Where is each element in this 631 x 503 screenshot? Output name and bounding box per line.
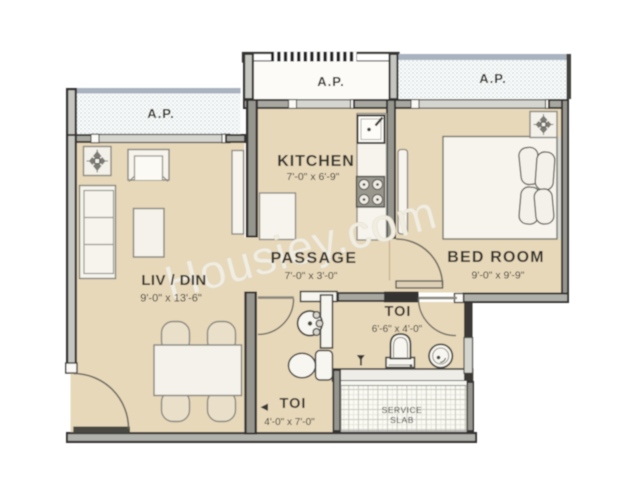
svg-text:KITCHEN: KITCHEN (277, 153, 354, 170)
svg-text:LIV / DIN: LIV / DIN (141, 272, 206, 289)
svg-text:4'-0" x 7'-0": 4'-0" x 7'-0" (264, 417, 315, 428)
svg-text:BED ROOM: BED ROOM (447, 249, 545, 266)
svg-text:7'-0" x 6'-9": 7'-0" x 6'-9" (287, 171, 340, 183)
svg-text:A.P.: A.P. (317, 74, 345, 89)
svg-text:TOI: TOI (280, 396, 307, 412)
svg-text:A.P.: A.P. (147, 106, 175, 121)
svg-text:TOI: TOI (385, 304, 412, 320)
svg-text:9'-0" x 13'-6": 9'-0" x 13'-6" (140, 293, 202, 305)
svg-text:6'-6" x 4'-0": 6'-6" x 4'-0" (372, 324, 423, 335)
svg-text:SLAB: SLAB (390, 415, 414, 425)
svg-text:A.P.: A.P. (479, 71, 507, 86)
svg-text:9'-0" x 9'-9": 9'-0" x 9'-9" (472, 270, 525, 282)
svg-text:SERVICE: SERVICE (382, 405, 423, 415)
svg-text:PASSAGE: PASSAGE (271, 250, 358, 267)
svg-text:7'-0" x 3'-0": 7'-0" x 3'-0" (285, 270, 338, 282)
